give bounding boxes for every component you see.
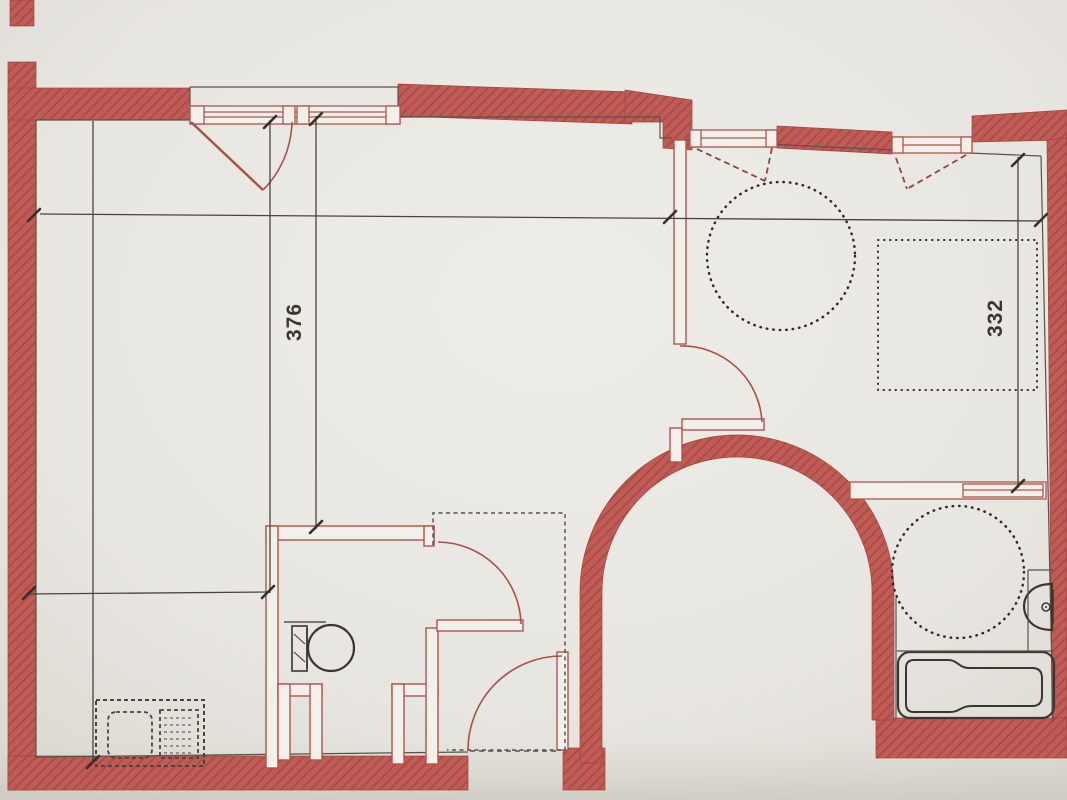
wc-wall-top bbox=[266, 526, 434, 540]
wall-top-left-mark bbox=[10, 0, 34, 26]
wall-left bbox=[8, 62, 36, 790]
dimension-label-332: 332 bbox=[984, 299, 1007, 337]
wall-top-d bbox=[972, 110, 1067, 142]
wall-bottom-right bbox=[876, 718, 1067, 758]
window-right-2 bbox=[892, 137, 972, 153]
floor-plan-drawing: 376 332 bbox=[0, 0, 1067, 800]
window-right-1 bbox=[690, 130, 777, 147]
partition-main-stub bbox=[670, 428, 682, 462]
wall-top-a bbox=[8, 88, 190, 120]
partition-window-band bbox=[850, 482, 1046, 499]
partition-main bbox=[674, 140, 686, 344]
floor-plan-photo: 376 332 bbox=[0, 0, 1067, 800]
wc-wall-left bbox=[266, 526, 278, 768]
dimension-label-376: 376 bbox=[283, 303, 306, 341]
window-top-left bbox=[190, 106, 400, 124]
